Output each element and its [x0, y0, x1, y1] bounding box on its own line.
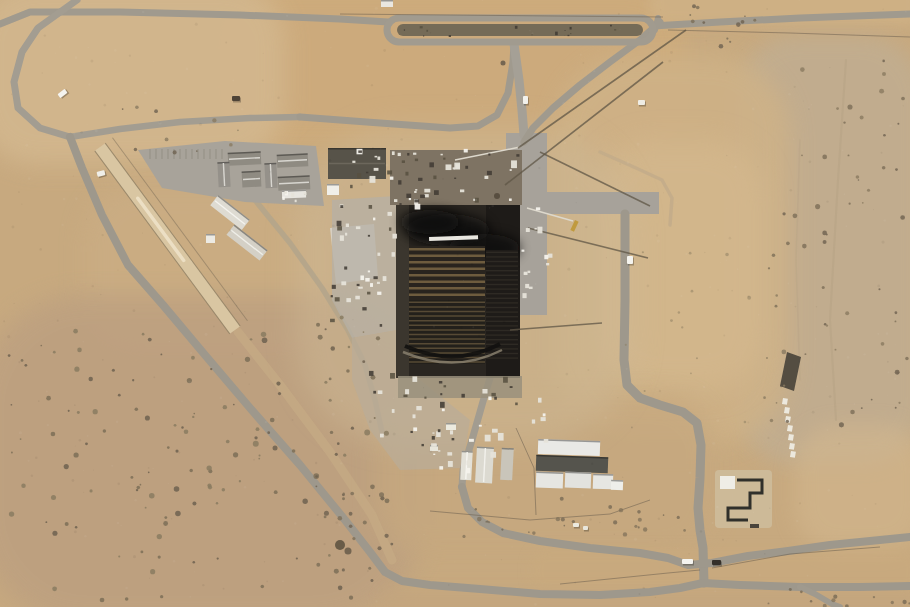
vehicle-dark-vehicle-north-sand	[232, 96, 241, 103]
vehicle-car-ne-desert	[638, 100, 646, 107]
film-grain-dot	[709, 286, 711, 288]
white-tent	[789, 443, 795, 450]
film-grain-dot	[622, 61, 623, 62]
desert-shrub	[191, 356, 195, 360]
desert-shrub	[563, 525, 565, 527]
construction-white-speck	[414, 191, 416, 193]
construction-dark-speck	[439, 381, 442, 384]
vehicle-body	[682, 559, 693, 564]
construction-white-speck	[346, 298, 351, 302]
construction-white-speck	[447, 452, 452, 455]
film-grain-dot	[82, 341, 84, 343]
desert-shrub	[744, 421, 747, 424]
construction-white-speck	[466, 460, 470, 465]
desert-shrub	[233, 452, 238, 457]
film-grain-dot	[111, 465, 113, 467]
film-grain-dot	[759, 574, 761, 576]
desert-shrub	[781, 350, 786, 355]
film-grain-dot	[882, 9, 883, 10]
desert-shrub	[145, 507, 147, 509]
desert-shrub	[642, 251, 644, 253]
film-grain-dot	[73, 133, 75, 135]
film-grain-dot	[46, 390, 48, 392]
desert-shrub	[130, 476, 133, 479]
desert-shrub	[329, 377, 332, 380]
construction-dark-speck	[515, 26, 518, 29]
film-grain-dot	[229, 229, 231, 231]
construction-white-speck	[537, 227, 542, 234]
film-grain-dot	[332, 224, 335, 227]
film-grain-dot	[660, 9, 661, 10]
film-grain-dot	[562, 102, 565, 105]
film-grain-dot	[576, 202, 577, 203]
film-grain-dot	[90, 60, 93, 63]
film-grain-dot	[767, 437, 769, 439]
film-grain-dot	[7, 335, 10, 338]
film-grain-dot	[39, 248, 42, 251]
film-grain-dot	[538, 167, 540, 169]
film-grain-dot	[863, 353, 865, 355]
roof-ridge-line	[243, 179, 260, 180]
film-grain-dot	[433, 326, 435, 328]
desert-shrub	[192, 502, 196, 506]
film-grain-dot	[460, 155, 461, 156]
film-grain-dot	[655, 597, 656, 598]
film-grain-dot	[244, 372, 246, 374]
desert-shrub	[250, 338, 252, 340]
construction-dark-speck	[449, 35, 451, 37]
film-grain-dot	[532, 32, 534, 34]
desert-shrub	[167, 446, 170, 449]
construction-white-speck	[544, 255, 548, 259]
construction-white-speck	[380, 434, 384, 438]
desert-shrub	[346, 369, 350, 373]
film-grain-dot	[808, 107, 810, 109]
vehicle-body	[627, 256, 633, 264]
film-grain-dot	[335, 521, 338, 524]
desert-shrub	[118, 394, 121, 397]
roof-shadow-edge	[446, 423, 456, 425]
film-grain-dot	[148, 467, 150, 469]
construction-white-speck	[356, 226, 360, 229]
construction-white-speck	[460, 189, 464, 192]
desert-shrub	[324, 381, 327, 384]
film-grain-dot	[202, 584, 204, 586]
film-grain-dot	[95, 129, 98, 132]
building-shadow-blob	[400, 210, 460, 234]
desert-shrub	[822, 155, 827, 160]
building-barracks-6	[278, 175, 311, 191]
film-grain-dot	[484, 424, 486, 426]
desert-shrub	[729, 41, 731, 43]
desert-shrub	[663, 514, 665, 516]
vehicle-vehicle-west-2	[96, 170, 106, 179]
film-grain-dot	[164, 264, 166, 266]
film-grain-dot	[705, 40, 706, 41]
desert-shrub	[556, 517, 560, 521]
film-grain-dot	[564, 35, 565, 36]
white-tent	[788, 434, 794, 441]
film-grain-dot	[803, 101, 804, 102]
desert-shrub	[20, 438, 22, 440]
film-grain-dot	[286, 15, 288, 17]
construction-white-speck	[536, 207, 540, 210]
film-grain-dot	[181, 400, 183, 402]
desert-shrub	[85, 442, 88, 445]
film-grain-dot	[55, 53, 56, 54]
film-grain-dot	[188, 381, 191, 384]
desert-shrub	[193, 413, 195, 415]
desert-shrub	[900, 215, 905, 220]
desert-shrub	[315, 475, 318, 478]
film-grain-dot	[134, 499, 136, 501]
film-grain-dot	[11, 93, 12, 94]
desert-shrub	[625, 344, 627, 346]
construction-dark-speck	[402, 160, 405, 163]
film-grain-dot	[361, 183, 363, 185]
film-grain-dot	[92, 285, 94, 287]
construction-white-speck	[464, 149, 468, 153]
film-grain-dot	[232, 353, 233, 354]
roof-shadow-edge	[206, 234, 215, 236]
film-grain-dot	[372, 147, 374, 149]
film-grain-dot	[223, 588, 225, 590]
desert-shrub	[270, 418, 275, 423]
desert-shrub	[897, 123, 899, 125]
building-warehouse-dark-roof	[536, 455, 609, 474]
construction-white-speck	[433, 444, 437, 446]
film-grain-dot	[74, 530, 77, 533]
construction-dark-speck	[403, 395, 407, 397]
film-grain-dot	[359, 150, 360, 151]
desert-shrub	[189, 469, 192, 472]
film-grain-dot	[875, 503, 877, 505]
desert-shrub	[150, 569, 155, 574]
desert-shrub	[316, 323, 320, 327]
desert-shrub	[262, 338, 268, 344]
desert-shrub	[318, 335, 323, 340]
film-grain-dot	[589, 518, 592, 521]
desert-shrub	[75, 526, 77, 528]
film-grain-dot	[153, 61, 154, 62]
film-grain-dot	[905, 11, 907, 13]
desert-shrub	[132, 379, 134, 381]
construction-dark-speck	[440, 393, 442, 395]
film-grain-dot	[903, 105, 904, 106]
film-grain-dot	[254, 295, 255, 296]
construction-dark-speck	[390, 373, 395, 379]
white-tent	[782, 398, 788, 405]
desert-shrub	[148, 471, 150, 473]
film-grain-dot	[583, 62, 585, 64]
desert-shrub	[229, 143, 233, 147]
film-grain-dot	[264, 481, 265, 482]
film-grain-dot	[577, 418, 579, 420]
film-grain-dot	[637, 143, 640, 146]
film-grain-dot	[375, 7, 378, 10]
film-grain-dot	[844, 193, 846, 195]
film-grain-dot	[489, 354, 491, 356]
film-grain-dot	[829, 67, 830, 68]
film-grain-dot	[277, 97, 280, 100]
film-grain-dot	[292, 419, 294, 421]
film-grain-dot	[86, 219, 87, 220]
film-grain-dot	[244, 311, 245, 312]
desert-shrub	[350, 492, 354, 496]
film-grain-dot	[25, 144, 28, 147]
desert-shrub	[719, 44, 724, 49]
construction-white-speck	[291, 193, 294, 197]
film-grain-dot	[731, 290, 733, 292]
desert-shrub	[560, 497, 564, 501]
film-grain-dot	[442, 178, 444, 180]
film-grain-dot	[906, 444, 907, 445]
desert-shrub	[532, 531, 536, 535]
construction-dark-speck	[475, 198, 479, 203]
desert-shrub	[237, 130, 239, 132]
film-grain-dot	[619, 29, 620, 30]
desert-shrub	[390, 543, 393, 546]
desert-shrub	[40, 345, 42, 347]
large-shrub	[335, 540, 345, 550]
desert-shrub	[895, 407, 897, 409]
desert-shrub	[125, 597, 129, 601]
construction-dark-speck	[357, 284, 360, 286]
construction-dark-speck	[406, 194, 411, 198]
film-grain-dot	[788, 93, 791, 96]
film-grain-dot	[340, 399, 343, 402]
construction-dark-speck	[369, 205, 372, 209]
film-grain-dot	[622, 476, 623, 477]
desert-shrub	[849, 202, 851, 204]
film-grain-dot	[186, 68, 189, 71]
desert-shrub	[804, 353, 806, 355]
construction-white-speck	[543, 413, 546, 416]
film-grain-dot	[178, 451, 180, 453]
desert-shrub	[145, 415, 150, 420]
film-grain-dot	[654, 540, 656, 542]
construction-dark-speck	[491, 393, 495, 396]
desert-shrub	[256, 427, 260, 431]
film-grain-dot	[614, 533, 616, 535]
desert-shrub	[363, 331, 365, 333]
desert-shrub	[160, 353, 162, 355]
desert-shrub	[363, 521, 367, 525]
desert-shrub	[384, 431, 389, 436]
film-grain-dot	[35, 456, 38, 459]
desert-shrub	[253, 441, 259, 447]
film-grain-dot	[895, 344, 896, 345]
construction-dark-speck	[368, 235, 370, 237]
film-grain-dot	[330, 47, 332, 49]
desert-shrub	[843, 121, 845, 123]
large-shrub	[345, 548, 352, 555]
film-grain-dot	[887, 394, 888, 395]
construction-dark-speck	[570, 33, 571, 34]
film-grain-dot	[87, 47, 89, 49]
building-roof	[500, 448, 514, 481]
desert-shrub	[93, 409, 98, 414]
satellite-image	[0, 0, 910, 607]
film-grain-dot	[127, 270, 129, 272]
film-grain-dot	[656, 55, 658, 57]
desert-shrub	[175, 449, 178, 452]
film-grain-dot	[225, 42, 227, 44]
film-grain-dot	[626, 263, 628, 265]
desert-shrub	[118, 556, 120, 558]
film-grain-dot	[877, 333, 879, 335]
film-grain-dot	[668, 60, 671, 63]
film-grain-dot	[656, 234, 658, 236]
desert-shrub	[833, 595, 837, 599]
film-grain-dot	[827, 489, 830, 492]
construction-white-speck	[392, 409, 395, 413]
desert-shrub	[73, 452, 78, 457]
desert-shrub	[135, 105, 139, 109]
desert-shrub	[677, 516, 680, 519]
construction-white-speck	[377, 253, 380, 256]
desert-shrub	[52, 531, 57, 536]
desert-shrub	[848, 154, 850, 156]
construction-dark-speck	[429, 162, 434, 167]
film-grain-dot	[659, 390, 661, 392]
desert-shrub	[871, 399, 873, 401]
desert-shrub	[637, 510, 641, 514]
film-grain-dot	[525, 342, 527, 344]
vehicle-body	[232, 96, 240, 101]
desert-shrub	[342, 497, 345, 500]
desert-shrub	[822, 286, 825, 289]
film-grain-dot	[722, 539, 724, 541]
film-grain-dot	[811, 104, 813, 106]
desert-shrub	[462, 535, 465, 538]
film-grain-dot	[726, 71, 728, 73]
desert-shrub	[800, 67, 805, 72]
desert-shrub	[362, 360, 365, 363]
desert-shrub	[74, 367, 79, 372]
film-grain-dot	[689, 471, 692, 474]
construction-dark-speck	[418, 178, 422, 181]
desert-shrub	[776, 402, 778, 404]
desert-shrub	[638, 526, 640, 528]
construction-white-speck	[479, 425, 482, 427]
desert-shrub	[883, 134, 886, 137]
film-grain-dot	[726, 155, 728, 157]
desert-shrub	[789, 588, 792, 591]
film-grain-dot	[80, 131, 82, 133]
desert-shrub	[325, 328, 327, 330]
film-grain-dot	[269, 171, 271, 173]
construction-dark-speck	[410, 431, 412, 433]
desert-shrub	[140, 484, 142, 486]
film-grain-dot	[444, 56, 445, 57]
film-grain-dot	[47, 424, 49, 426]
desert-shrub	[370, 579, 373, 582]
film-grain-dot	[747, 295, 749, 297]
desert-shrub	[501, 528, 503, 530]
film-grain-dot	[729, 237, 732, 240]
film-grain-dot	[842, 150, 844, 152]
construction-dark-speck	[420, 195, 425, 198]
construction-white-speck	[416, 406, 421, 410]
desert-shrub	[882, 166, 886, 170]
film-grain-dot	[508, 514, 510, 516]
film-grain-dot	[317, 514, 319, 516]
desert-shrub	[342, 568, 345, 571]
film-grain-dot	[576, 319, 578, 321]
film-grain-dot	[889, 124, 892, 127]
construction-white-speck	[373, 218, 375, 221]
desert-shrub	[895, 311, 898, 314]
desert-shrub	[376, 336, 380, 340]
desert-shrub	[349, 524, 353, 528]
terrain-patch-se-mound	[795, 425, 910, 550]
building-barracks-5	[264, 163, 277, 189]
construction-white-speck	[433, 454, 435, 455]
construction-dark-speck	[358, 150, 362, 152]
film-grain-dot	[385, 164, 388, 167]
building-roof	[536, 472, 564, 489]
film-grain-dot	[129, 54, 131, 56]
film-grain-dot	[685, 253, 687, 255]
film-grain-dot	[758, 314, 760, 316]
desert-shrub	[850, 410, 855, 415]
film-grain-dot	[117, 483, 120, 486]
construction-white-speck	[442, 409, 445, 412]
construction-dark-speck	[444, 385, 447, 387]
film-grain-dot	[18, 361, 20, 363]
film-grain-dot	[847, 356, 850, 359]
desert-shrub	[783, 384, 785, 386]
film-grain-dot	[615, 186, 617, 188]
desert-shrub	[619, 508, 623, 512]
film-grain-dot	[557, 387, 558, 388]
desert-shrub	[763, 396, 766, 399]
film-grain-dot	[663, 192, 664, 193]
film-grain-dot	[213, 326, 215, 328]
construction-dark-speck	[399, 203, 401, 205]
film-grain-dot	[403, 49, 404, 50]
desert-shrub	[678, 311, 680, 313]
construction-dark-speck	[380, 324, 382, 327]
desert-shrub	[368, 495, 370, 497]
desert-shrub	[815, 204, 820, 209]
film-grain-dot	[700, 530, 702, 532]
film-grain-dot	[658, 518, 661, 521]
desert-shrub	[823, 240, 827, 244]
construction-white-speck	[488, 396, 491, 400]
desert-shrub	[316, 563, 320, 567]
construction-dark-speck	[373, 276, 377, 279]
film-grain-dot	[50, 352, 52, 354]
film-grain-dot	[87, 124, 88, 125]
film-grain-dot	[471, 510, 472, 511]
se-l-shaped-compound	[715, 470, 772, 528]
desert-shrub	[103, 429, 106, 432]
construction-white-speck	[284, 191, 287, 193]
desert-shrub	[77, 411, 80, 414]
film-grain-dot	[709, 353, 711, 355]
film-grain-dot	[457, 254, 459, 256]
film-grain-dot	[294, 522, 296, 524]
film-grain-dot	[887, 361, 889, 363]
construction-dark-speck	[610, 25, 612, 27]
film-grain-dot	[894, 378, 896, 380]
desert-shrub	[822, 231, 827, 236]
desert-shrub	[149, 493, 155, 499]
desert-shrub	[772, 254, 776, 258]
film-grain-dot	[881, 241, 884, 244]
